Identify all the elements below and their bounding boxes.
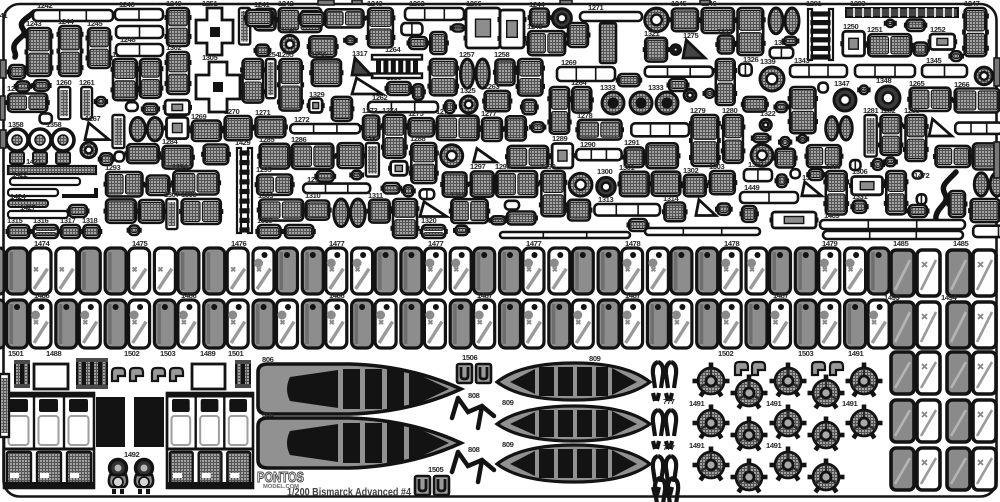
- svg-text:1302: 1302: [683, 166, 698, 175]
- svg-text:1488: 1488: [46, 349, 61, 358]
- svg-text:809: 809: [502, 398, 514, 407]
- svg-text:1283: 1283: [904, 106, 919, 115]
- svg-text:1251: 1251: [867, 25, 883, 34]
- svg-text:1343: 1343: [794, 56, 809, 65]
- svg-text:1300: 1300: [597, 167, 612, 176]
- svg-text:1255: 1255: [278, 50, 294, 59]
- svg-text:1311: 1311: [368, 191, 384, 200]
- svg-text:1502: 1502: [124, 349, 139, 358]
- svg-text:1295: 1295: [256, 165, 272, 174]
- svg-text:1429: 1429: [235, 138, 250, 147]
- svg-text:1286: 1286: [291, 135, 306, 144]
- svg-text:1491: 1491: [689, 441, 705, 450]
- svg-text:1241: 1241: [254, 0, 270, 9]
- svg-text:1264: 1264: [385, 45, 401, 54]
- svg-text:1242: 1242: [37, 1, 52, 10]
- svg-text:1319: 1319: [257, 216, 272, 225]
- svg-text:1501: 1501: [8, 349, 24, 358]
- svg-text:1348: 1348: [876, 76, 891, 85]
- svg-text:1243: 1243: [367, 0, 382, 8]
- svg-text:1281: 1281: [806, 0, 822, 8]
- svg-text:1303: 1303: [709, 162, 724, 171]
- svg-text:1489: 1489: [200, 349, 215, 358]
- svg-text:1289: 1289: [552, 134, 567, 143]
- svg-text:1269: 1269: [561, 58, 576, 67]
- svg-text:1247: 1247: [964, 0, 979, 8]
- svg-text:1329: 1329: [309, 90, 324, 99]
- svg-text:1317: 1317: [352, 49, 367, 58]
- svg-text:1244: 1244: [529, 0, 545, 9]
- svg-text:1249: 1249: [527, 22, 542, 31]
- svg-text:1320: 1320: [421, 216, 436, 225]
- svg-text:1243: 1243: [26, 19, 41, 28]
- svg-text:1290: 1290: [580, 140, 595, 149]
- svg-text:1271: 1271: [588, 3, 604, 12]
- svg-text:1265: 1265: [909, 79, 925, 88]
- svg-text:1279: 1279: [690, 106, 705, 115]
- svg-text:1492: 1492: [124, 450, 139, 459]
- svg-text:1491: 1491: [842, 399, 858, 408]
- svg-text:1325: 1325: [460, 86, 476, 95]
- svg-text:1307: 1307: [164, 190, 179, 199]
- svg-text:1503: 1503: [798, 349, 813, 358]
- svg-text:1257: 1257: [459, 50, 474, 59]
- svg-text:1472: 1472: [914, 171, 929, 180]
- svg-text:1274: 1274: [382, 106, 398, 115]
- svg-text:1245: 1245: [671, 0, 687, 8]
- svg-text:1246: 1246: [119, 0, 134, 9]
- svg-text:1485: 1485: [953, 239, 969, 248]
- svg-text:1/200 Bismarck Advanced #4: 1/200 Bismarck Advanced #4: [287, 487, 411, 499]
- svg-text:1248: 1248: [120, 35, 135, 44]
- svg-text:1309: 1309: [258, 191, 273, 200]
- svg-text:1421: 1421: [26, 157, 42, 166]
- svg-text:1250: 1250: [843, 22, 858, 31]
- svg-text:1314: 1314: [663, 194, 679, 203]
- svg-text:1327: 1327: [717, 27, 732, 36]
- svg-text:1261: 1261: [79, 78, 95, 87]
- svg-text:1241: 1241: [0, 11, 8, 20]
- svg-text:1281: 1281: [863, 106, 879, 115]
- svg-text:1308: 1308: [181, 190, 196, 199]
- svg-text:1266: 1266: [954, 80, 969, 89]
- svg-text:1305: 1305: [202, 53, 218, 62]
- svg-text:1321: 1321: [644, 29, 660, 38]
- svg-text:1256: 1256: [311, 50, 326, 59]
- svg-text:1285: 1285: [259, 135, 275, 144]
- svg-text:1242: 1242: [278, 0, 293, 8]
- svg-text:1267: 1267: [85, 114, 100, 123]
- svg-text:1326: 1326: [743, 55, 758, 64]
- svg-text:1288: 1288: [410, 134, 425, 143]
- svg-text:1485: 1485: [893, 239, 909, 248]
- svg-text:1323: 1323: [748, 160, 763, 169]
- svg-text:1299: 1299: [540, 162, 555, 171]
- svg-text:1503: 1503: [160, 349, 175, 358]
- svg-text:1347: 1347: [834, 79, 849, 88]
- svg-text:1266: 1266: [466, 0, 481, 8]
- svg-text:809: 809: [502, 440, 514, 449]
- svg-text:1298: 1298: [495, 162, 510, 171]
- svg-text:1505: 1505: [428, 465, 444, 474]
- svg-text:1277: 1277: [481, 109, 496, 118]
- svg-text:1283: 1283: [850, 0, 865, 8]
- svg-text:1260: 1260: [56, 78, 71, 87]
- svg-text:1245: 1245: [87, 19, 103, 28]
- svg-text:1494: 1494: [941, 293, 957, 302]
- svg-text:1333: 1333: [600, 83, 615, 92]
- svg-text:809: 809: [589, 354, 601, 363]
- svg-text:1339: 1339: [760, 57, 775, 66]
- svg-text:1275: 1275: [683, 31, 699, 40]
- svg-text:1294: 1294: [172, 162, 188, 171]
- svg-text:808: 808: [468, 391, 480, 400]
- svg-text:1345: 1345: [926, 56, 942, 65]
- svg-text:1284: 1284: [162, 137, 178, 146]
- svg-text:1310: 1310: [305, 191, 320, 200]
- svg-text:808: 808: [468, 445, 480, 454]
- svg-text:1258: 1258: [494, 50, 509, 59]
- svg-text:1262: 1262: [409, 0, 424, 8]
- svg-text:1358: 1358: [8, 120, 23, 129]
- svg-text:1302: 1302: [166, 43, 181, 52]
- svg-text:1333: 1333: [648, 83, 663, 92]
- svg-text:1269: 1269: [191, 112, 206, 121]
- svg-text:1244: 1244: [58, 17, 74, 26]
- svg-text:1331: 1331: [852, 192, 868, 201]
- svg-text:1491: 1491: [766, 399, 782, 408]
- svg-text:1252: 1252: [930, 25, 945, 34]
- svg-text:1248: 1248: [281, 25, 296, 34]
- svg-text:1422: 1422: [12, 170, 27, 179]
- svg-text:1291: 1291: [624, 138, 640, 147]
- svg-text:1449: 1449: [744, 183, 759, 192]
- svg-text:1424: 1424: [10, 192, 26, 201]
- svg-text:1493: 1493: [884, 293, 899, 302]
- svg-text:1491: 1491: [766, 441, 782, 450]
- svg-text:1249: 1249: [166, 0, 181, 8]
- svg-text:1271: 1271: [255, 108, 271, 117]
- svg-text:1263: 1263: [484, 82, 499, 91]
- svg-text:1502: 1502: [718, 349, 733, 358]
- svg-text:1272: 1272: [294, 115, 309, 124]
- svg-text:1312: 1312: [450, 190, 465, 199]
- svg-text:777: 777: [663, 443, 675, 452]
- svg-text:1275: 1275: [408, 109, 424, 118]
- svg-text:1301: 1301: [619, 163, 635, 172]
- svg-text:1278: 1278: [577, 111, 592, 120]
- svg-text:1506: 1506: [462, 353, 477, 362]
- svg-text:1469: 1469: [824, 211, 839, 220]
- svg-text:1251: 1251: [202, 0, 218, 8]
- svg-text:1297: 1297: [470, 162, 485, 171]
- svg-text:1287: 1287: [364, 134, 379, 143]
- svg-text:1280: 1280: [722, 106, 737, 115]
- svg-text:1491: 1491: [848, 349, 864, 358]
- svg-text:1273: 1273: [362, 106, 377, 115]
- svg-text:1501: 1501: [228, 349, 244, 358]
- svg-text:1491: 1491: [689, 399, 705, 408]
- svg-text:1427: 1427: [20, 203, 35, 212]
- svg-text:777: 777: [663, 397, 675, 406]
- svg-text:1313: 1313: [598, 195, 613, 204]
- svg-text:1305: 1305: [825, 162, 841, 171]
- svg-text:1358: 1358: [46, 120, 61, 129]
